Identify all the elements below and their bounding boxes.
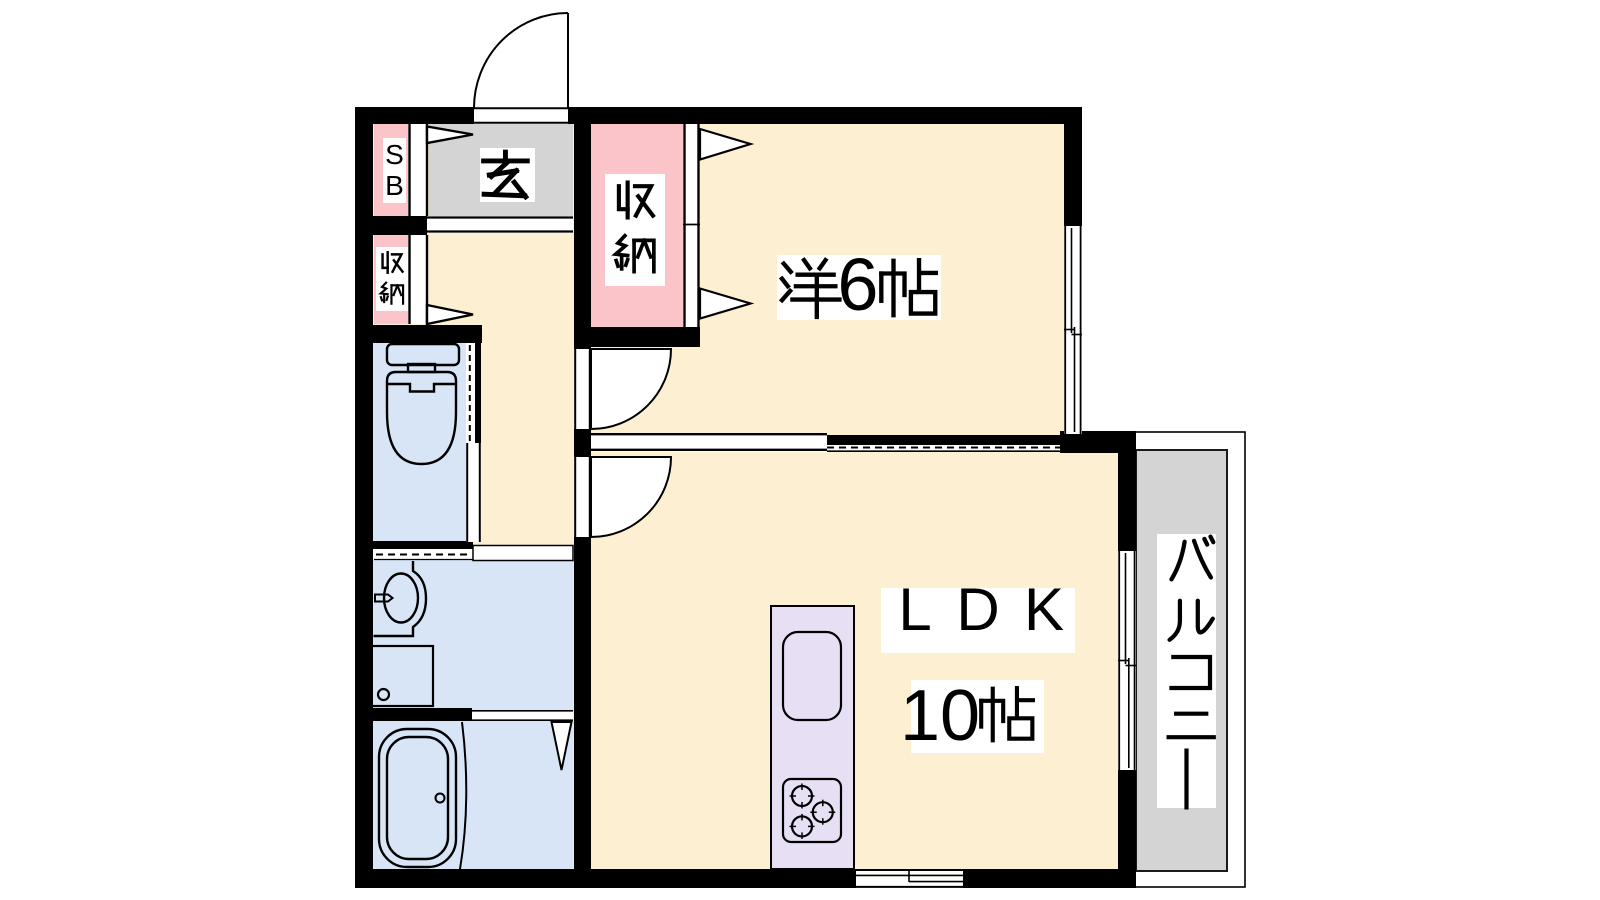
svg-text:D: D [956, 576, 999, 643]
svg-text:10: 10 [900, 676, 980, 756]
svg-text:B: B [385, 170, 404, 201]
svg-text:L: L [898, 576, 931, 643]
svg-text:S: S [385, 139, 404, 170]
svg-text:K: K [1024, 576, 1064, 643]
svg-text:6: 6 [837, 243, 878, 326]
